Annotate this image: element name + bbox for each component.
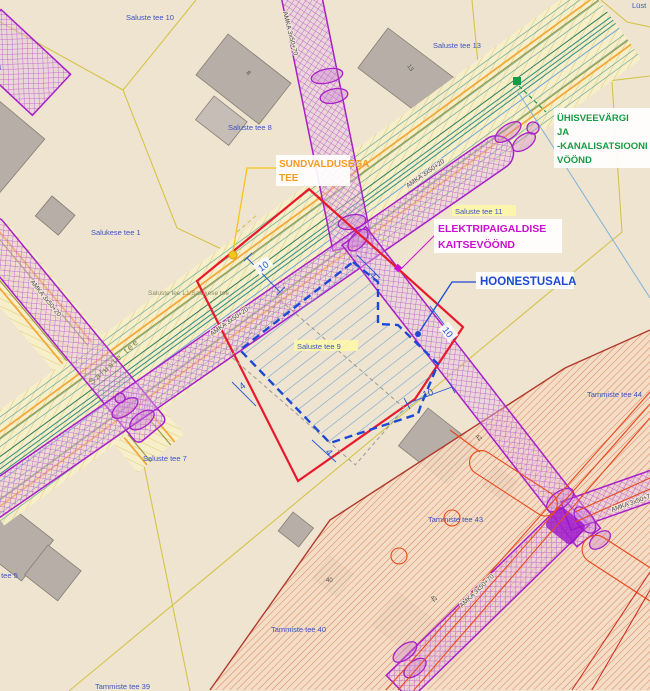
detail-plan-map: 10 10 10 4 4 4 AMKA 3x50+20 AMKA 3x50+20… (0, 0, 650, 691)
sundvaldus-label-line2: TEE (279, 173, 299, 184)
sundvaldus-label-line1: SUNDVALDUSEGA (279, 159, 369, 170)
parcel-label-corner-partial: Lüst (632, 1, 647, 10)
house-number-3-partial: 3 (0, 63, 1, 72)
parcel-label-saluste-7: Saluste tee 7 (143, 454, 187, 463)
parcel-label-saluste-10: Saluste tee 10 (126, 13, 174, 22)
uvk-label-line4: VÖÖND (557, 155, 592, 166)
uvk-label-line2: JA (557, 127, 569, 138)
zone-annotation-uvk: ÜHISVEEVÄRGI JA -KANALISATSIOONI VÖÖND (554, 108, 650, 168)
water-zone-dot (513, 77, 521, 85)
parcel-label-tammiste-40: Tammiste tee 40 (271, 625, 326, 634)
zone-annotation-elektri: ELEKTRIPAIGALDISE KAITSEVÖÖND (434, 219, 562, 253)
elektri-label-line2: KAITSEVÖÖND (438, 238, 515, 251)
parcel-label-saluste-9: Saluste tee 9 (297, 342, 341, 351)
house-number-40: 40 (326, 578, 333, 584)
elektri-label-line1: ELEKTRIPAIGALDISE (438, 223, 546, 235)
parcel-label-saluste-13: Saluste tee 13 (433, 41, 481, 50)
zone-annotation-hoonestusala: HOONESTUSALA (476, 272, 576, 289)
parcel-label-saluste-5: Saluste tee 5 (0, 571, 18, 580)
parcel-label-salukese-1: Salukese tee 1 (91, 228, 141, 237)
uvk-label-line3: -KANALISATSIOONI (557, 141, 648, 152)
road-name-combo: Saluste tee L1/Salukese tee (148, 290, 229, 297)
parcel-label-tammiste-39: Tammiste tee 39 (95, 682, 150, 691)
parcel-label-tammiste-43: Tammiste tee 43 (428, 515, 483, 524)
building-area-leader-dot (415, 331, 421, 337)
parcel-label-saluste-8: Saluste tee 8 (228, 123, 272, 132)
road-leader-dot (229, 251, 237, 259)
hoonestusala-label: HOONESTUSALA (480, 276, 576, 288)
uvk-label-line1: ÜHISVEEVÄRGI (557, 113, 629, 124)
parcel-label-tammiste-44: Tammiste tee 44 (587, 390, 642, 399)
plan-canvas: 10 10 10 4 4 4 AMKA 3x50+20 AMKA 3x50+20… (0, 0, 650, 691)
parcel-label-saluste-11: Saluste tee 11 (455, 207, 502, 216)
